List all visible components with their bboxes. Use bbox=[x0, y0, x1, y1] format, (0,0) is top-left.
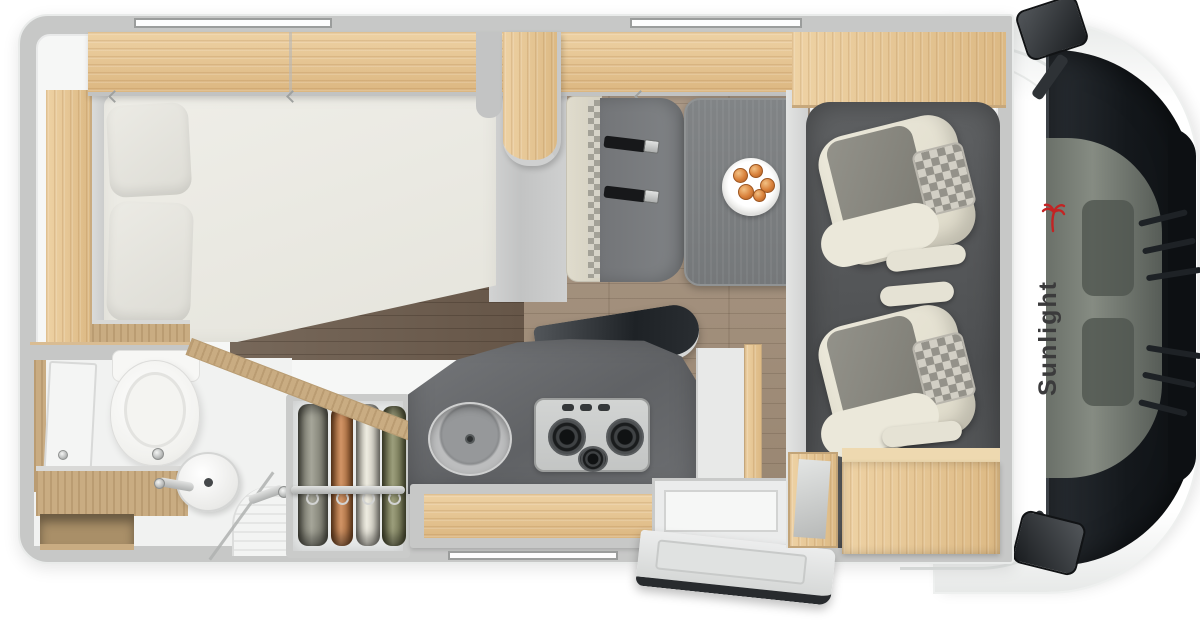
palm-icon bbox=[1036, 202, 1070, 234]
hob-knob-icon bbox=[562, 404, 574, 411]
door-knob-icon bbox=[58, 450, 68, 460]
window-top-left bbox=[134, 18, 332, 28]
burner bbox=[606, 418, 644, 456]
fruit bbox=[733, 168, 748, 183]
floorplan-canvas: Sunlight bbox=[0, 0, 1200, 620]
entry-door-inner-panel bbox=[655, 539, 807, 585]
entry-side-wall bbox=[696, 348, 744, 494]
flush-button-icon bbox=[152, 448, 164, 460]
faucet-base-icon bbox=[154, 478, 165, 489]
vanity-counter bbox=[36, 466, 188, 516]
toilet-seat bbox=[124, 372, 186, 448]
door-side-cabinet-mirror bbox=[793, 459, 830, 539]
seatbelt-buckle-icon bbox=[643, 189, 659, 204]
fruit bbox=[738, 184, 754, 200]
corner-cabinet bbox=[842, 462, 1000, 554]
window-bottom bbox=[448, 551, 618, 560]
seatbelt-buckle-icon bbox=[643, 139, 659, 154]
overhead-cabinet-seam bbox=[289, 32, 292, 96]
fruit bbox=[749, 164, 763, 178]
bed-end-wall bbox=[46, 90, 92, 356]
dashboard-shape-1 bbox=[1082, 200, 1134, 296]
tv-bracket-slot bbox=[476, 32, 502, 118]
sink-drain-icon bbox=[204, 478, 213, 487]
dashboard-shape-2 bbox=[1082, 318, 1134, 406]
alcove-overhead-wood bbox=[792, 32, 1006, 108]
hanging-garment-orange bbox=[331, 406, 353, 546]
vanity-open-shelf bbox=[40, 514, 134, 550]
entry-step bbox=[664, 490, 778, 532]
kitchen-end-panel bbox=[744, 344, 762, 494]
overhead-cabinet-band bbox=[88, 32, 792, 96]
pillow bbox=[106, 102, 193, 198]
pillow bbox=[106, 201, 194, 324]
window-top-right bbox=[630, 18, 802, 28]
burner bbox=[578, 446, 608, 472]
hob-knob-icon bbox=[598, 404, 610, 411]
tv-swivel-panel bbox=[503, 32, 561, 166]
fruit bbox=[753, 189, 766, 202]
kitchen-sink-drain-icon bbox=[465, 434, 475, 444]
wardrobe-rail bbox=[291, 486, 405, 494]
hanging-garment-olive-grey bbox=[298, 404, 328, 546]
cab-interior-through-glass bbox=[1046, 138, 1162, 478]
hob-knob-icon bbox=[580, 404, 592, 411]
sunlight-logo-text: Sunlight bbox=[1033, 236, 1063, 396]
cab-front-edge bbox=[1168, 128, 1196, 484]
